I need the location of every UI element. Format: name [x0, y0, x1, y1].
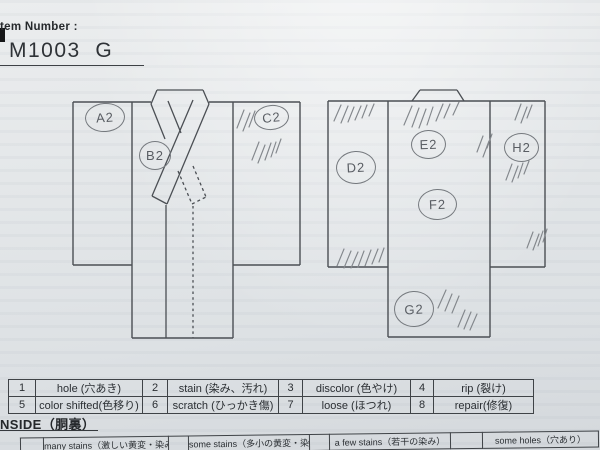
legend-label-scratch: scratch (ひっかき傷)	[168, 397, 279, 414]
mark-a2-label: A2	[96, 109, 115, 125]
legend-code-5: 5	[9, 397, 36, 414]
inside-check-1	[20, 438, 43, 450]
legend-label-repair: repair(修復)	[434, 397, 534, 414]
legend-row-2: 5 color shifted(色移り) 6 scratch (ひっかき傷) 7…	[9, 397, 534, 414]
legend-code-8: 8	[411, 397, 434, 414]
legend-code-1: 1	[9, 380, 36, 397]
mark-f2-label: F2	[429, 197, 447, 213]
legend-label-discolor: discolor (色やけ)	[303, 380, 411, 397]
pencil-hatch-marks	[237, 102, 547, 330]
legend-label-stain: stain (染み、汚れ)	[168, 380, 279, 397]
legend-code-7: 7	[279, 397, 303, 414]
inside-label-few-stains: a few stains（若干の染み）	[329, 433, 450, 450]
inside-check-3	[309, 434, 329, 450]
inside-label-some-stains: some stains（多小の黄変・染み）	[188, 435, 309, 450]
legend-label-loose: loose (ほつれ)	[303, 397, 411, 414]
mark-e2-label: E2	[419, 137, 437, 153]
condition-legend-table: 1 hole (穴あき) 2 stain (染み、汚れ) 3 discolor …	[8, 379, 534, 414]
mark-a2: A2	[84, 102, 126, 134]
inside-title-underline	[0, 430, 98, 431]
mark-g2: G2	[393, 290, 435, 328]
mark-f2: F2	[417, 188, 457, 220]
inside-row: many stains（激しい黄変・染み） some stains（多小の黄変・…	[20, 431, 598, 450]
mark-g2-label: G2	[404, 301, 424, 317]
item-number-label: tem Number :	[0, 21, 78, 33]
inside-check-2	[168, 436, 188, 450]
mark-d2-label: D2	[346, 160, 365, 176]
legend-row-1: 1 hole (穴あき) 2 stain (染み、汚れ) 3 discolor …	[9, 380, 534, 397]
mark-e2: E2	[411, 129, 447, 159]
inside-label-some-holes: some holes（穴あり）	[482, 431, 598, 448]
legend-code-2: 2	[143, 380, 168, 397]
mark-h2-label: H2	[512, 140, 531, 155]
mark-c2-label: C2	[261, 109, 281, 126]
mark-d2: D2	[335, 150, 377, 185]
mark-b2: B2	[139, 141, 171, 170]
item-number-value: M1003 G	[9, 39, 113, 63]
mark-b2-label: B2	[146, 148, 164, 163]
legend-code-3: 3	[279, 380, 303, 397]
legend-code-4: 4	[411, 380, 434, 397]
inside-label-many-stains: many stains（激しい黄変・染み）	[43, 436, 168, 450]
item-number-underline	[0, 65, 144, 66]
kimono-front-collar	[151, 90, 209, 338]
mark-c2: C2	[253, 103, 290, 132]
mark-h2: H2	[504, 133, 539, 162]
legend-label-hole: hole (穴あき)	[36, 380, 143, 397]
inside-check-4	[450, 432, 482, 448]
legend-code-6: 6	[143, 397, 168, 414]
legend-label-rip: rip (裂け)	[434, 380, 534, 397]
kimono-front-diagram	[73, 102, 300, 338]
inside-condition-table: many stains（激しい黄変・染み） some stains（多小の黄変・…	[20, 430, 599, 450]
legend-label-color-shifted: color shifted(色移り)	[36, 397, 143, 414]
document-sheet: tem Number : M1003 G	[0, 0, 600, 450]
